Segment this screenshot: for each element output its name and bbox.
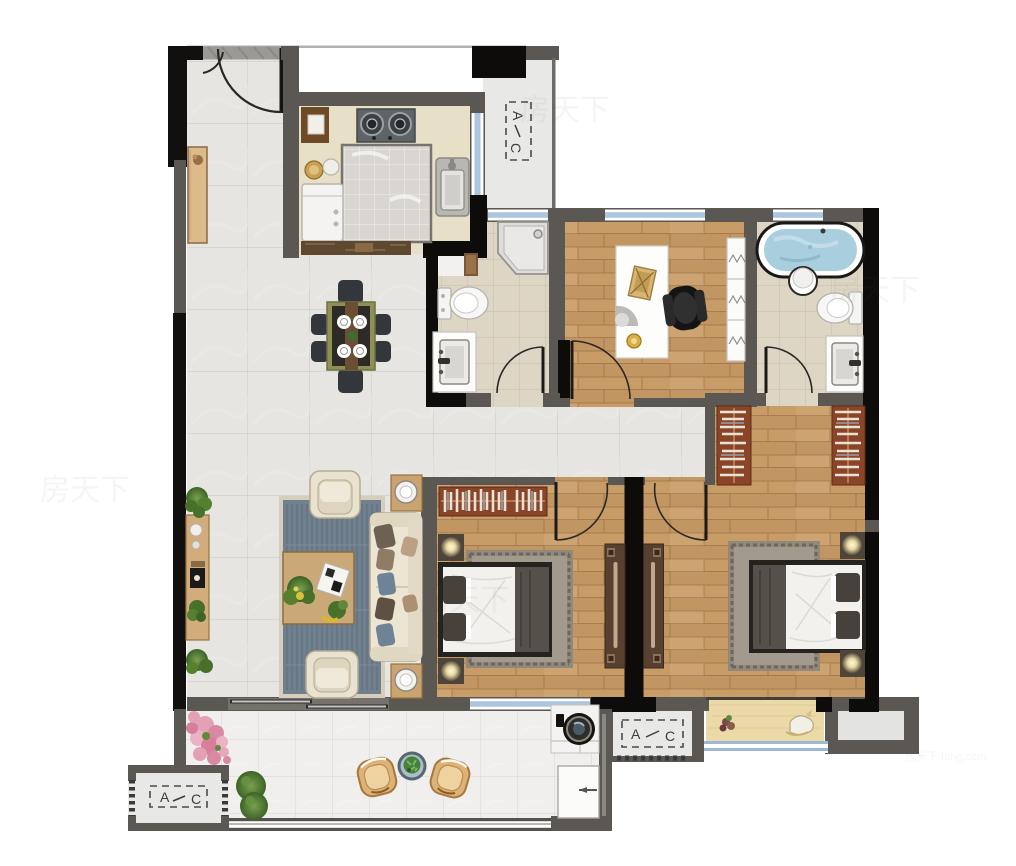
svg-text:房天下: 房天下 (520, 94, 610, 127)
svg-text:房天下: 房天下 (40, 474, 130, 507)
svg-text:A: A (631, 726, 641, 742)
svg-text:房天下: 房天下 (830, 274, 920, 307)
svg-text:C: C (508, 143, 524, 153)
svg-text:房天下 fang.com: 房天下 fang.com (905, 750, 986, 763)
svg-text:C: C (191, 791, 201, 807)
svg-text:A: A (160, 789, 170, 805)
svg-text:C: C (665, 728, 675, 744)
svg-text:房天下: 房天下 (420, 584, 510, 617)
